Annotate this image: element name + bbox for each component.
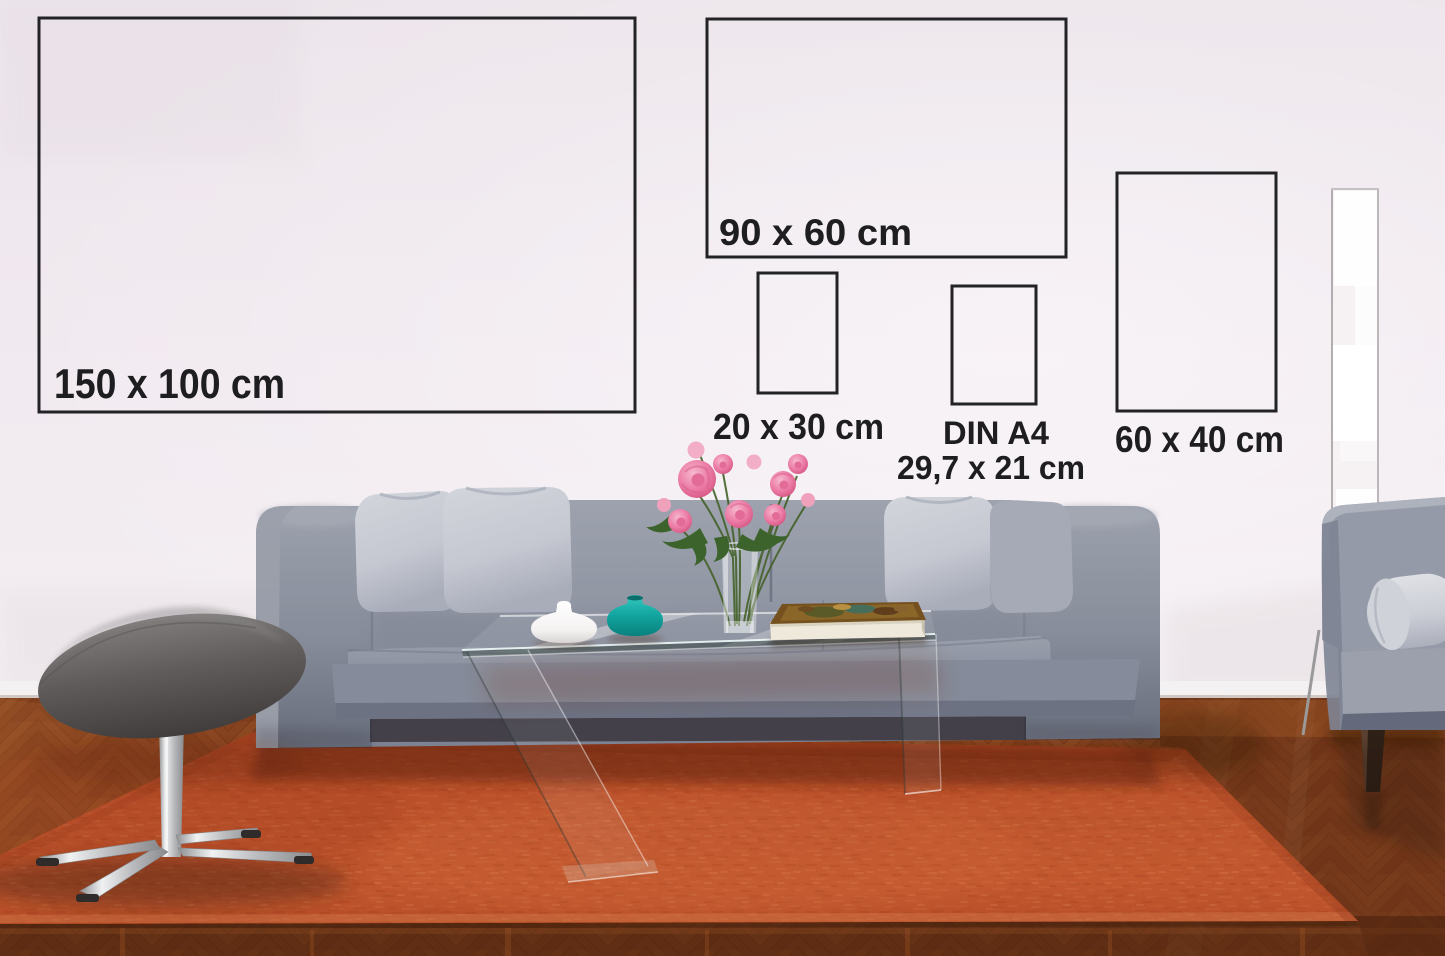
svg-text:DIN A4: DIN A4 <box>943 415 1049 451</box>
svg-text:60 x 40 cm: 60 x 40 cm <box>1115 419 1284 460</box>
svg-text:150 x 100 cm: 150 x 100 cm <box>54 360 285 407</box>
svg-text:20 x 30 cm: 20 x 30 cm <box>713 406 884 447</box>
svg-text:29,7 x 21 cm: 29,7 x 21 cm <box>897 449 1085 486</box>
svg-text:90 x 60 cm: 90 x 60 cm <box>719 212 912 253</box>
